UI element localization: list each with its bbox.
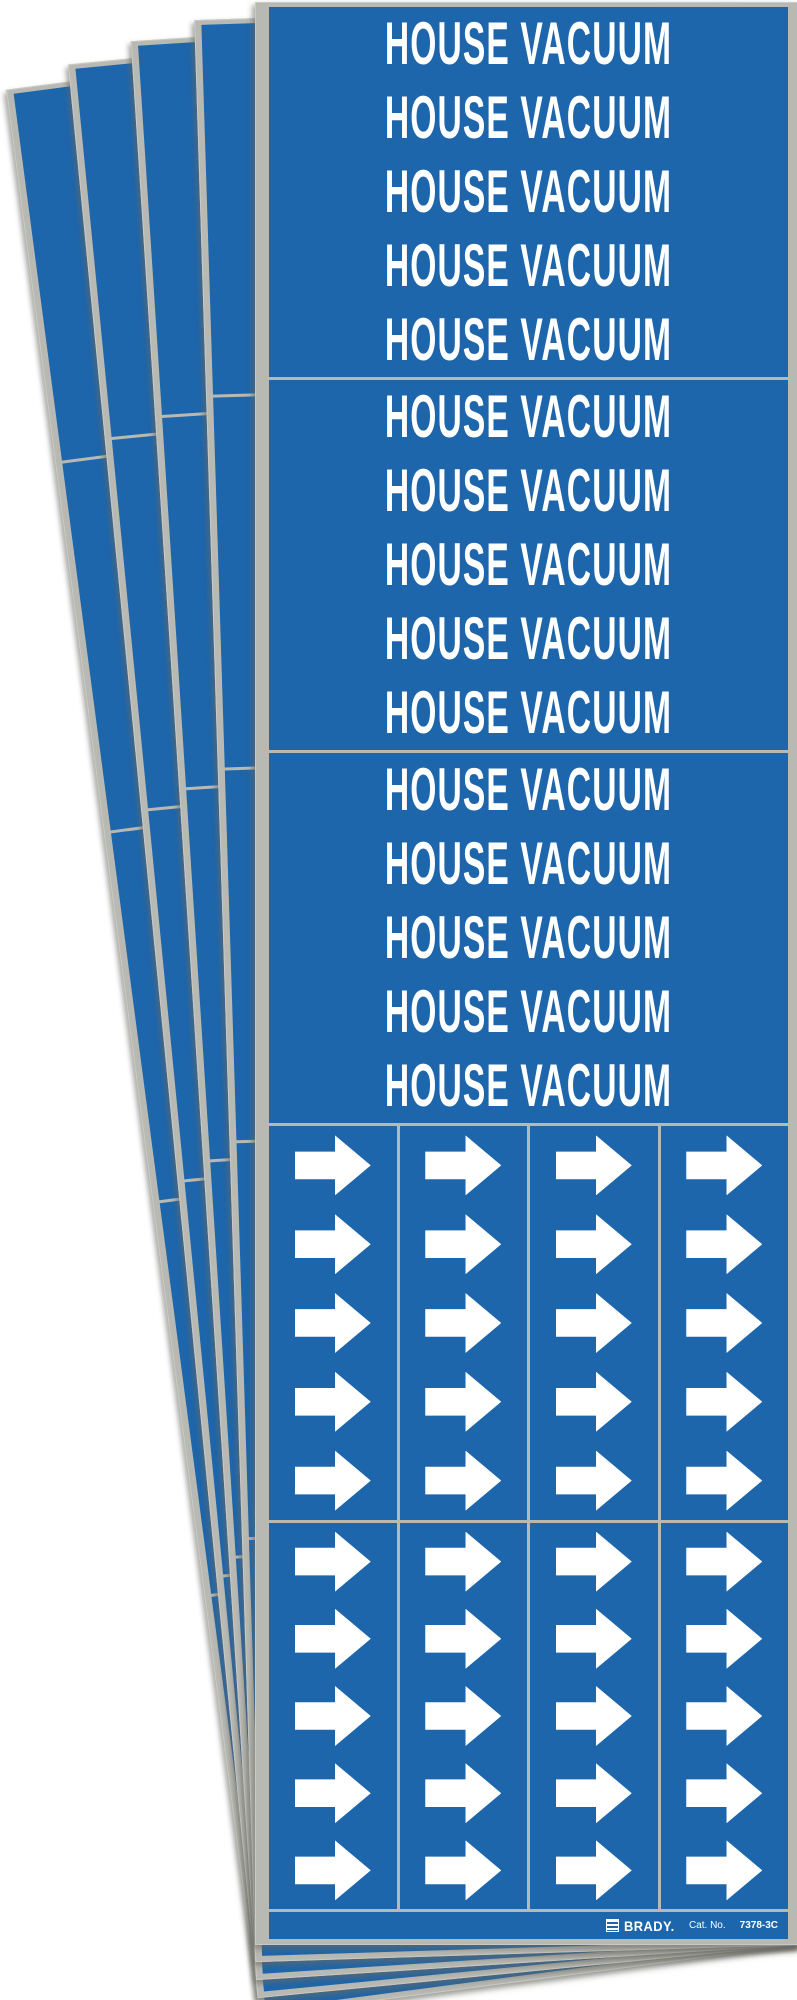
arrow-cell	[530, 1126, 658, 1205]
pipe-marker-label: HOUSE VACUUM	[269, 7, 788, 81]
arrow-cell	[269, 1677, 397, 1754]
flow-arrow-icon	[686, 1532, 762, 1592]
pipe-marker-label: HOUSE VACUUM	[269, 454, 788, 528]
pipe-marker-label: HOUSE VACUUM	[269, 753, 788, 827]
arrow-cell	[400, 1600, 528, 1677]
flow-arrow-icon	[295, 1214, 371, 1274]
label-section: HOUSE VACUUMHOUSE VACUUMHOUSE VACUUMHOUS…	[269, 7, 788, 377]
arrow-marker-column	[661, 1523, 789, 1909]
flow-arrow-icon	[556, 1532, 632, 1592]
pipe-marker-label: HOUSE VACUUM	[269, 901, 788, 975]
arrow-cell	[400, 1205, 528, 1284]
pipe-marker-label-text: HOUSE VACUUM	[385, 609, 672, 669]
flow-arrow-icon	[425, 1293, 501, 1353]
arrow-cell	[269, 1126, 397, 1205]
arrow-cell	[269, 1600, 397, 1677]
flow-arrow-icon	[686, 1451, 762, 1511]
pipe-marker-label-text: HOUSE VACUUM	[385, 535, 672, 595]
brand-name: BRADY.	[624, 1918, 675, 1934]
pipe-marker-label-text: HOUSE VACUUM	[385, 760, 672, 820]
arrow-cell	[661, 1362, 789, 1441]
pipe-marker-label: HOUSE VACUUM	[269, 827, 788, 901]
pipe-marker-label: HOUSE VACUUM	[269, 676, 788, 750]
brady-logo-icon	[606, 1919, 619, 1932]
flow-arrow-icon	[556, 1763, 632, 1823]
pipe-marker-label-text: HOUSE VACUUM	[385, 236, 672, 296]
arrow-cell	[661, 1832, 789, 1909]
flow-arrow-icon	[425, 1214, 501, 1274]
flow-arrow-icon	[686, 1372, 762, 1432]
arrow-cell	[530, 1677, 658, 1754]
flow-arrow-icon	[686, 1840, 762, 1900]
flow-arrow-icon	[425, 1372, 501, 1432]
catalog-number: 7378-3C	[740, 1920, 778, 1931]
flow-arrow-icon	[295, 1372, 371, 1432]
arrow-cell	[400, 1832, 528, 1909]
flow-arrow-icon	[556, 1451, 632, 1511]
arrow-cell	[530, 1523, 658, 1600]
pipe-marker-label: HOUSE VACUUM	[269, 528, 788, 602]
arrow-cell	[530, 1441, 658, 1520]
pipe-marker-label: HOUSE VACUUM	[269, 229, 788, 303]
pipe-marker-label-text: HOUSE VACUUM	[385, 1056, 672, 1116]
flow-arrow-icon	[425, 1686, 501, 1746]
pipe-marker-label: HOUSE VACUUM	[269, 602, 788, 676]
arrow-cell	[400, 1441, 528, 1520]
arrow-cell	[269, 1284, 397, 1363]
pipe-marker-label-text: HOUSE VACUUM	[385, 461, 672, 521]
arrow-cell	[661, 1441, 789, 1520]
flow-arrow-icon	[556, 1214, 632, 1274]
flow-arrow-icon	[295, 1686, 371, 1746]
flow-arrow-icon	[686, 1135, 762, 1195]
flow-arrow-icon	[295, 1135, 371, 1195]
arrow-cell	[661, 1755, 789, 1832]
arrow-cell	[400, 1126, 528, 1205]
flow-arrow-icon	[556, 1372, 632, 1432]
product-photo: HOUSE VACUUMHOUSE VACUUMHOUSE VACUUMHOUS…	[0, 0, 797, 2000]
arrow-marker-column	[269, 1523, 397, 1909]
flow-arrow-icon	[425, 1532, 501, 1592]
label-section: HOUSE VACUUMHOUSE VACUUMHOUSE VACUUMHOUS…	[269, 380, 788, 750]
pipe-marker-label-text: HOUSE VACUUM	[385, 387, 672, 447]
arrow-cell	[661, 1523, 789, 1600]
arrow-cell	[530, 1832, 658, 1909]
arrow-cell	[530, 1600, 658, 1677]
arrow-cell	[400, 1284, 528, 1363]
pipe-marker-label: HOUSE VACUUM	[269, 303, 788, 377]
arrow-cell	[400, 1523, 528, 1600]
flow-arrow-icon	[686, 1686, 762, 1746]
flow-arrow-icon	[686, 1214, 762, 1274]
flow-arrow-icon	[295, 1609, 371, 1669]
arrow-cell	[661, 1677, 789, 1754]
flow-arrow-icon	[295, 1451, 371, 1511]
flow-arrow-icon	[556, 1135, 632, 1195]
arrow-marker-column	[400, 1126, 528, 1520]
arrow-cell	[530, 1755, 658, 1832]
pipe-marker-label: HOUSE VACUUM	[269, 380, 788, 454]
arrow-cell	[661, 1205, 789, 1284]
flow-arrow-icon	[556, 1686, 632, 1746]
pipe-marker-label-text: HOUSE VACUUM	[385, 310, 672, 370]
label-section: HOUSE VACUUMHOUSE VACUUMHOUSE VACUUMHOUS…	[269, 753, 788, 1123]
flow-arrow-icon	[425, 1609, 501, 1669]
flow-arrow-icon	[556, 1609, 632, 1669]
arrow-marker-column	[269, 1126, 397, 1520]
pipe-marker-label-text: HOUSE VACUUM	[385, 834, 672, 894]
arrow-cell	[400, 1755, 528, 1832]
flow-arrow-icon	[425, 1135, 501, 1195]
flow-arrow-icon	[556, 1840, 632, 1900]
pipe-marker-label-text: HOUSE VACUUM	[385, 162, 672, 222]
arrow-marker-column	[530, 1126, 658, 1520]
pipe-marker-label: HOUSE VACUUM	[269, 81, 788, 155]
flow-arrow-icon	[686, 1293, 762, 1353]
arrow-cell	[269, 1523, 397, 1600]
pipe-marker-label-text: HOUSE VACUUM	[385, 982, 672, 1042]
arrow-cell	[530, 1284, 658, 1363]
arrow-cell	[400, 1362, 528, 1441]
arrow-cell	[661, 1600, 789, 1677]
brady-branding: BRADY. Cat. No. 7378-3C	[606, 1918, 778, 1934]
arrow-section	[269, 1126, 788, 1520]
pipe-marker-label-text: HOUSE VACUUM	[385, 908, 672, 968]
flow-arrow-icon	[686, 1609, 762, 1669]
arrow-cell	[661, 1126, 789, 1205]
arrow-marker-column	[530, 1523, 658, 1909]
sheet-footer: BRADY. Cat. No. 7378-3C	[269, 1912, 788, 1939]
arrow-cell	[269, 1832, 397, 1909]
arrow-cell	[269, 1755, 397, 1832]
flow-arrow-icon	[295, 1293, 371, 1353]
pipe-marker-label-text: HOUSE VACUUM	[385, 88, 672, 148]
flow-arrow-icon	[556, 1293, 632, 1353]
flow-arrow-icon	[425, 1840, 501, 1900]
flow-arrow-icon	[295, 1840, 371, 1900]
pipe-marker-label: HOUSE VACUUM	[269, 975, 788, 1049]
pipe-marker-label: HOUSE VACUUM	[269, 1049, 788, 1123]
pipe-marker-label: HOUSE VACUUM	[269, 155, 788, 229]
pipe-marker-label-text: HOUSE VACUUM	[385, 14, 672, 74]
flow-arrow-icon	[425, 1763, 501, 1823]
arrow-cell	[269, 1441, 397, 1520]
pipe-marker-label-text: HOUSE VACUUM	[385, 683, 672, 743]
flow-arrow-icon	[686, 1763, 762, 1823]
arrow-cell	[269, 1205, 397, 1284]
arrow-cell	[530, 1362, 658, 1441]
arrow-marker-column	[661, 1126, 789, 1520]
arrow-marker-column	[400, 1523, 528, 1909]
catalog-number-label: Cat. No.	[689, 1920, 726, 1931]
flow-arrow-icon	[295, 1532, 371, 1592]
pipe-marker-sheet-front: HOUSE VACUUMHOUSE VACUUMHOUSE VACUUMHOUS…	[255, 2, 797, 1945]
arrow-cell	[530, 1205, 658, 1284]
flow-arrow-icon	[425, 1451, 501, 1511]
arrow-cell	[400, 1677, 528, 1754]
arrow-section	[269, 1523, 788, 1909]
arrow-cell	[269, 1362, 397, 1441]
arrow-cell	[661, 1284, 789, 1363]
flow-arrow-icon	[295, 1763, 371, 1823]
